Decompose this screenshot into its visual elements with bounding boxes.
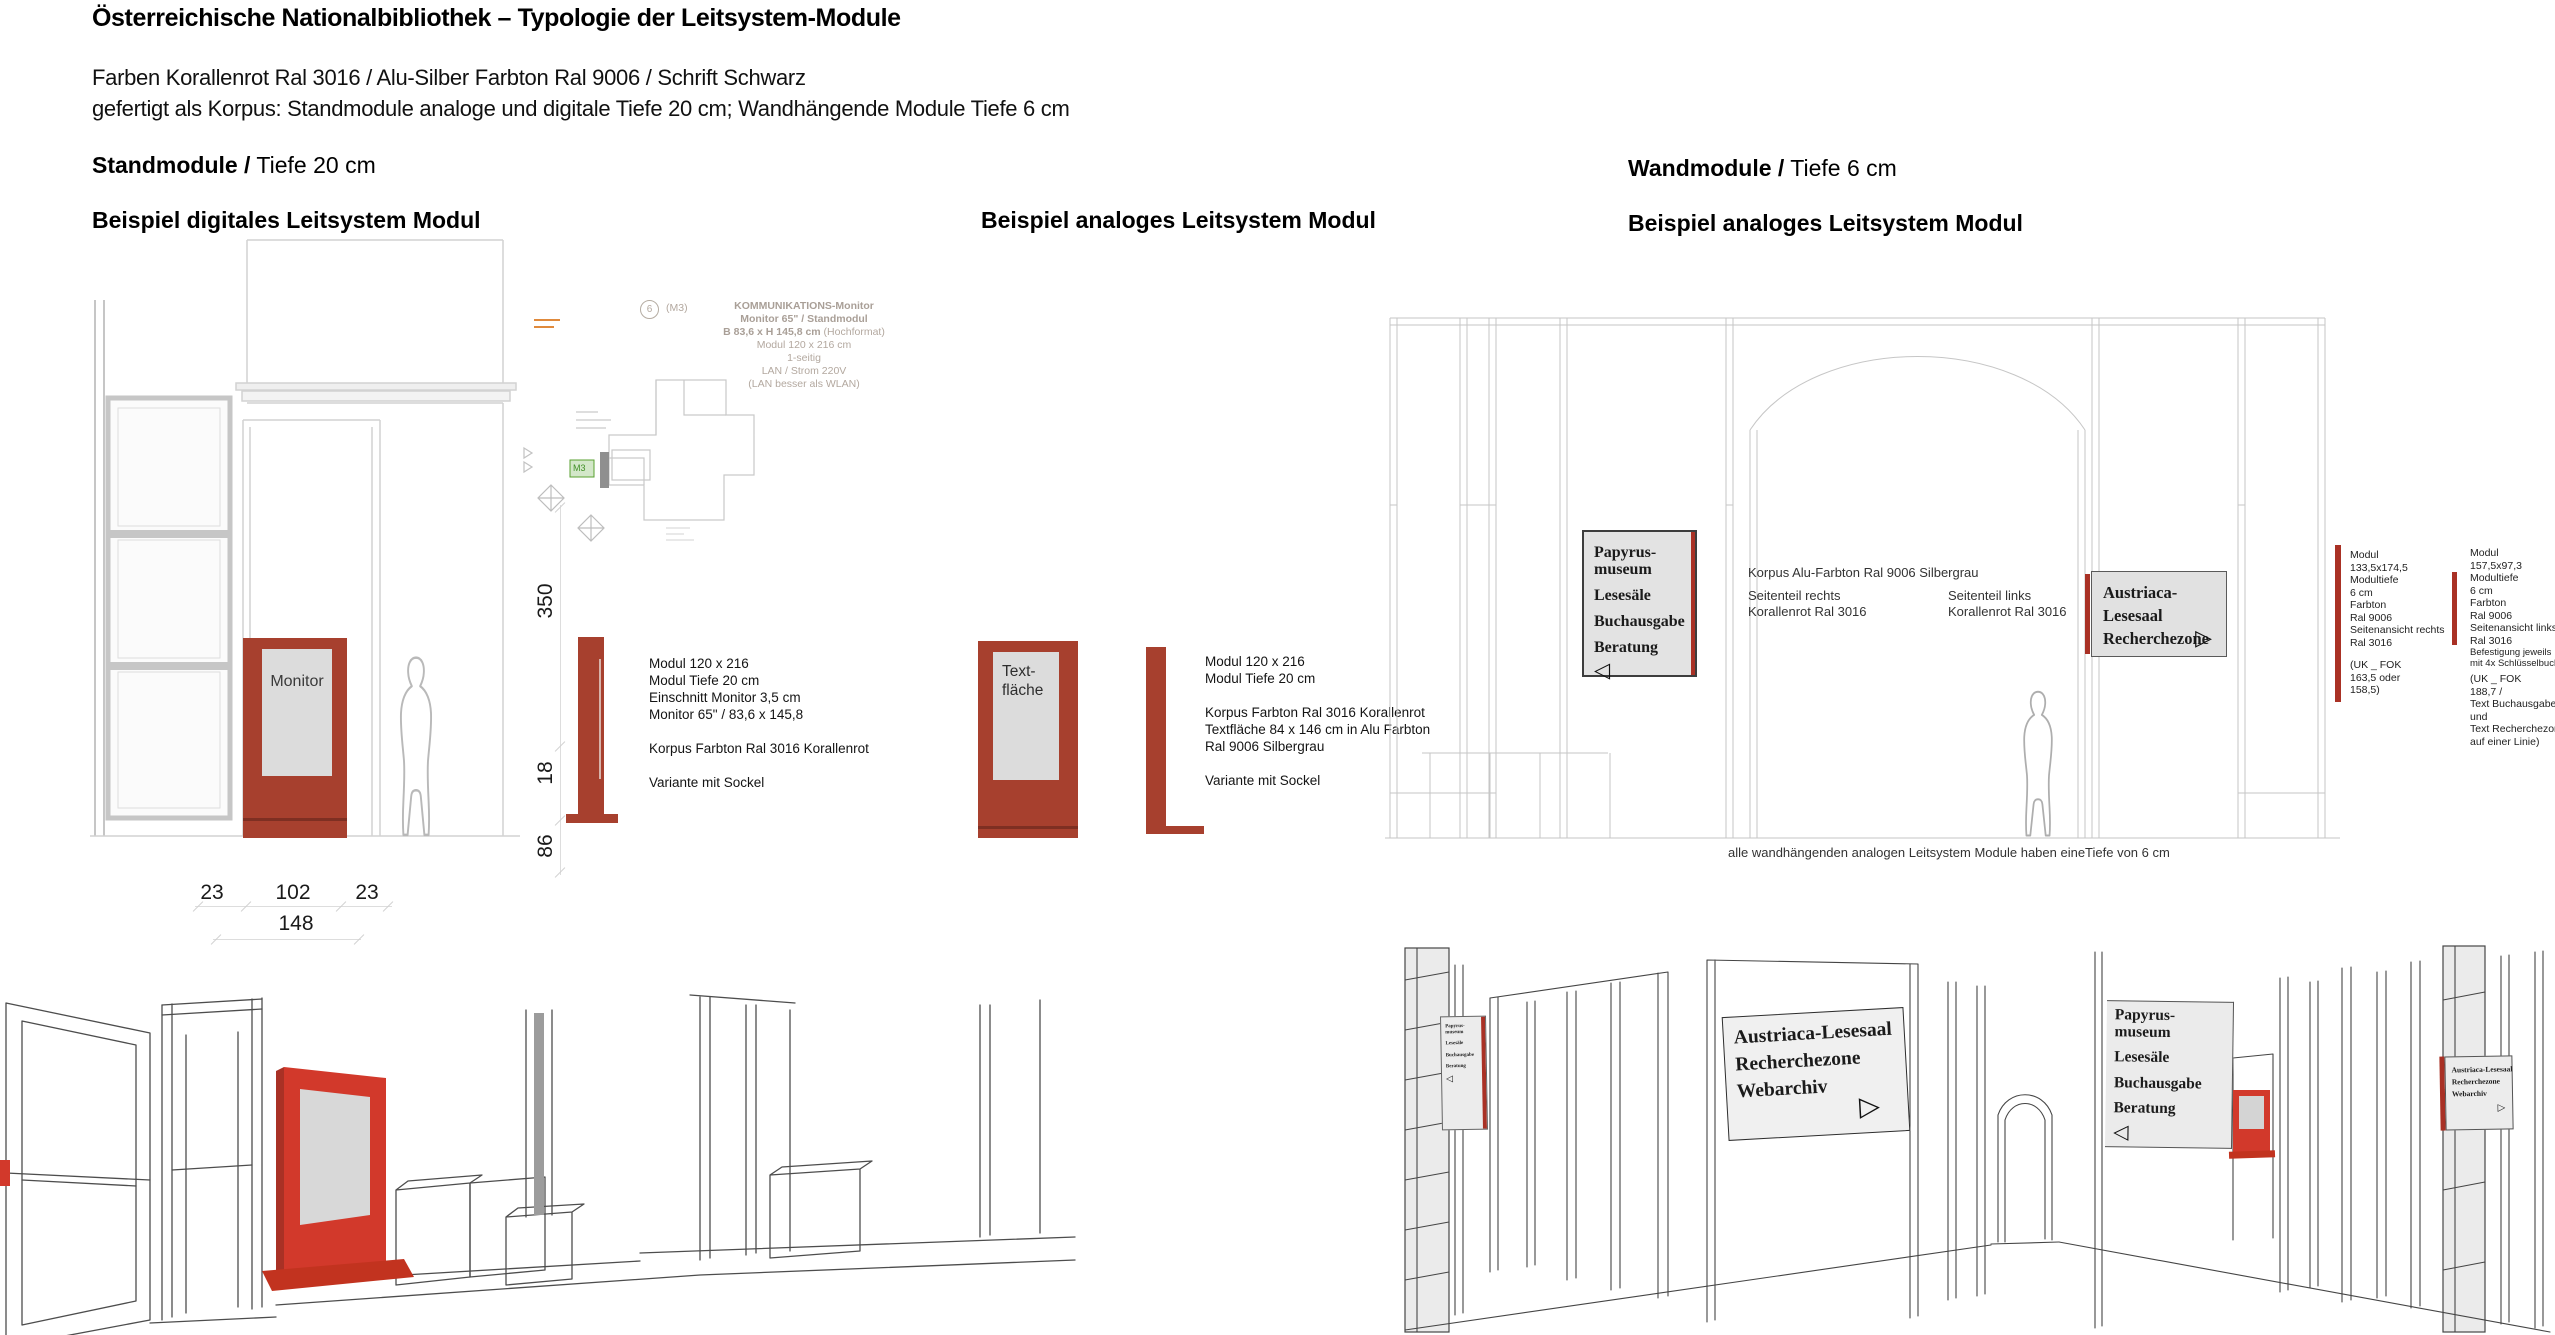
subtitle-line-2: gefertigt als Korpus: Standmodule analog… (92, 93, 1070, 124)
sign-line: Buchausgabe (1594, 613, 1695, 630)
digital-module-side-profile (578, 637, 604, 815)
plan-note-line: B 83,6 x H 145,8 cm (Hochformat) (690, 326, 918, 339)
perspective-webarchiv-sign-small: Austriaca-Lesesaal Recherchezone Webarch… (2439, 1055, 2513, 1130)
analog-module-front: Text- fläche (978, 641, 1078, 838)
heading-example-analog-wand: Beispiel analoges Leitsystem Modul (1628, 210, 2023, 237)
plan-green-label: M3 (573, 463, 586, 473)
digital-module-base-seam (243, 818, 347, 821)
dimension-line-horizontal-2 (213, 939, 361, 940)
dimension-line-horizontal-1 (195, 906, 392, 907)
heading-wandmodule-bold: Wandmodule / (1628, 155, 1784, 181)
perspective-webarchiv-sign-large: Austriaca-Lesesaal Recherchezone Webarch… (1722, 1007, 1911, 1141)
analog-module-side-base (1146, 826, 1204, 834)
plan-note-line: Monitor 65" / Standmodul (690, 313, 918, 326)
spec-line: Monitor 65" / 83,6 x 145,8 (649, 706, 869, 723)
plan-ref-circle: 6 (640, 300, 659, 319)
heading-wandmodule-rest: Tiefe 6 cm (1784, 155, 1896, 181)
plan-note-line: Modul 120 x 216 cm (690, 339, 918, 352)
dim-148: 148 (266, 912, 326, 936)
sign-line: Papyrus- (1594, 544, 1695, 561)
plan-note-line: KOMMUNIKATIONS-Monitor (690, 300, 918, 313)
heading-standmodule-rest: Tiefe 20 cm (250, 152, 375, 178)
note-seitenteil-rechts: Seitenteil rechtsKorallenrot Ral 3016 (1748, 588, 1867, 620)
dim-23-right: 23 (347, 881, 387, 905)
digital-module-screen-label: Monitor (262, 673, 332, 691)
perspective-small-directory-sign: Papyrus- museum Lesesäle Buchausgabe Ber… (1440, 1016, 1488, 1131)
subtitle-line-1: Farben Korallenrot Ral 3016 / Alu-Silber… (92, 62, 1070, 93)
perspective-red-module (2233, 1090, 2270, 1152)
colonnade-sketch (1395, 940, 2555, 1335)
heading-example-analog-stand: Beispiel analoges Leitsystem Modul (981, 207, 1376, 234)
spec-line: Modul 120 x 216 (649, 655, 869, 672)
arrow-right-icon: ▷ (1858, 1093, 1880, 1121)
page-title: Österreichische Nationalbibliothek – Typ… (92, 4, 901, 33)
digital-module-front: Monitor (243, 638, 347, 838)
arrow-left-icon: ◁ (1594, 660, 1695, 681)
dim-350: 350 (534, 579, 558, 623)
arrow-right-icon: ▷ (2497, 1104, 2505, 1114)
arrow-left-icon: ◁ (1446, 1074, 1486, 1084)
sign-line: Beratung (1594, 639, 1695, 656)
heading-standmodule-bold: Standmodule / (92, 152, 250, 178)
sign-line: Austriaca-Lesesaal (2103, 581, 2226, 627)
human-silhouette (392, 653, 440, 838)
kiosk-3d-screen (300, 1089, 370, 1225)
entrance-sketch (0, 975, 1080, 1335)
spec-line: Modul Tiefe 20 cm (649, 672, 869, 689)
plan-module-mark (600, 452, 609, 488)
wall-caption: alle wandhängenden analogen Leitsystem M… (1728, 845, 2170, 861)
heading-wandmodule: Wandmodule / Tiefe 6 cm (1628, 155, 1897, 182)
analog-module-side-profile (1146, 647, 1166, 830)
spec-line: Einschnitt Monitor 3,5 cm (649, 689, 869, 706)
digital-module-side-base (566, 814, 618, 823)
dim-23-left: 23 (192, 881, 232, 905)
sign-red-stripe (2085, 574, 2090, 654)
perspective-directory-sign-large: Papyrus- museum Lesesäle Buchausgabe Ber… (2105, 1000, 2234, 1149)
wall-module-side-bar-right (2335, 545, 2341, 702)
analog-module-screen: Text- fläche (993, 652, 1059, 780)
heading-example-digital: Beispiel digitales Leitsystem Modul (92, 207, 481, 234)
human-silhouette (2016, 688, 2060, 838)
directory-sign: Papyrus- museum Lesesäle Buchausgabe Ber… (1582, 530, 1697, 677)
note-korpus: Korpus Alu-Farbton Ral 9006 Silbergrau (1748, 565, 1979, 581)
plan-note-block: KOMMUNIKATIONS-Monitor Monitor 65" / Sta… (690, 300, 918, 391)
sign-line: museum (1594, 561, 1695, 578)
plan-note-line: (LAN besser als WLAN) (690, 378, 918, 391)
plan-ref-code: (M3) (666, 302, 688, 315)
sign-red-stripe (1481, 1017, 1487, 1129)
dim-86: 86 (534, 824, 558, 868)
spec-line: Korpus Farbton Ral 3016 Korallenrot (649, 740, 869, 757)
arrow-right-icon: ▷ (2195, 628, 2212, 650)
dim-102: 102 (263, 881, 323, 905)
austriaca-sign: Austriaca-Lesesaal Recherchezone ▷ (2085, 571, 2227, 657)
sign-line: Lesesäle (1594, 587, 1695, 604)
analog-module-base-seam (978, 826, 1078, 829)
note-seitenteil-links: Seitenteil linksKorallenrot Ral 3016 (1948, 588, 2067, 620)
spec-line: Variante mit Sockel (649, 774, 869, 791)
wall-module-side-bar-left (2452, 572, 2457, 645)
heading-standmodule: Standmodule / Tiefe 20 cm (92, 152, 376, 179)
analog-screen-label-1: Text- (1002, 662, 1059, 681)
arrow-left-icon: ◁ (2113, 1121, 2231, 1143)
wall-spec-right-side: Modul 133,5x174,5 Modultiefe 6 cm Farbto… (2350, 549, 2445, 697)
dim-18: 18 (534, 751, 558, 795)
digital-module-screen: Monitor (262, 649, 332, 776)
digital-spec-block: Modul 120 x 216 Modul Tiefe 20 cm Einsch… (649, 655, 869, 791)
wall-spec-left-side: Modul 157,5x97,3 Modultiefe 6 cm Farbton… (2470, 547, 2555, 748)
plan-note-line: 1-seitig (690, 352, 918, 365)
spec-sheet: Österreichische Nationalbibliothek – Typ… (0, 0, 2555, 1335)
sign-red-stripe (1691, 532, 1695, 675)
plan-note-line: LAN / Strom 220V (690, 365, 918, 378)
analog-screen-label-2: fläche (1002, 681, 1059, 700)
